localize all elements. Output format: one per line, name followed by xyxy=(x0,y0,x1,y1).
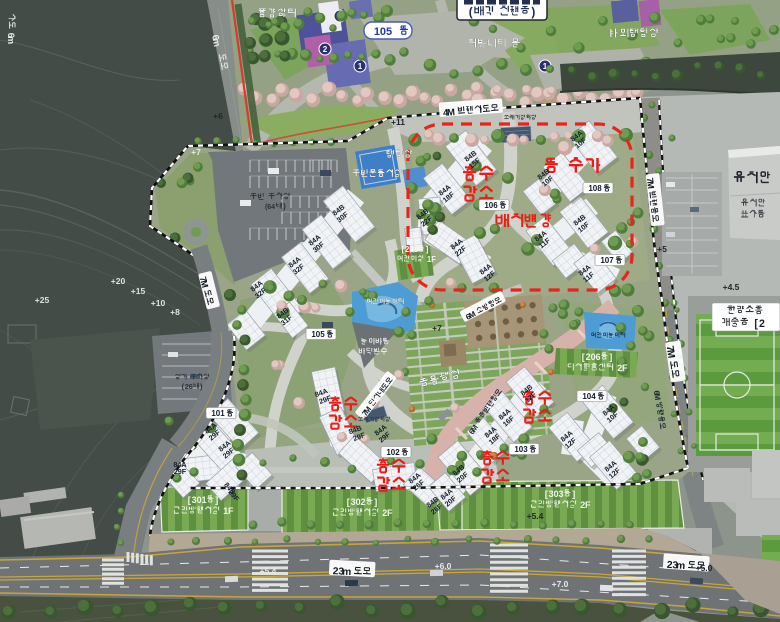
svg-text:6: 6 xyxy=(595,352,600,362)
svg-text:F: F xyxy=(431,255,436,264)
svg-text:M: M xyxy=(447,107,456,119)
svg-text:(: ( xyxy=(469,5,473,19)
svg-text:+10: +10 xyxy=(151,298,166,308)
svg-text:(64: (64 xyxy=(265,204,275,211)
svg-text:102: 102 xyxy=(386,448,400,457)
svg-text:[: [ xyxy=(754,318,758,330)
svg-text:F: F xyxy=(585,500,591,510)
svg-text:+5.4: +5.4 xyxy=(260,566,277,576)
svg-text:+5.4: +5.4 xyxy=(527,511,544,521)
svg-text:M: M xyxy=(652,393,662,401)
svg-text:+6.0: +6.0 xyxy=(435,561,452,571)
svg-text:+20: +20 xyxy=(111,276,126,286)
svg-text:104: 104 xyxy=(582,392,596,401)
svg-text:+11: +11 xyxy=(391,117,405,127)
svg-text:3: 3 xyxy=(414,245,419,254)
svg-text:2: 2 xyxy=(323,45,328,54)
svg-text:+7: +7 xyxy=(191,147,201,157)
svg-text:M: M xyxy=(645,181,656,190)
svg-text:]: ] xyxy=(609,352,612,362)
svg-text:+5: +5 xyxy=(657,244,667,254)
svg-text:+7: +7 xyxy=(432,323,442,333)
svg-text:1: 1 xyxy=(201,495,206,505)
svg-text:3: 3 xyxy=(558,489,563,499)
svg-text:29F: 29F xyxy=(174,467,187,476)
svg-text:1: 1 xyxy=(358,62,363,71)
svg-text:m: m xyxy=(676,560,686,572)
svg-text:+7.0: +7.0 xyxy=(552,579,569,589)
svg-text:6: 6 xyxy=(189,382,193,391)
svg-text:+15: +15 xyxy=(131,286,146,296)
svg-text:108: 108 xyxy=(588,184,602,193)
svg-text:): ) xyxy=(531,5,535,19)
svg-text:105: 105 xyxy=(311,330,325,339)
svg-text:+6: +6 xyxy=(213,111,223,121)
svg-text:2: 2 xyxy=(759,318,765,330)
svg-text:F: F xyxy=(387,508,393,518)
svg-text:[: [ xyxy=(188,495,191,505)
svg-text:]: ] xyxy=(215,495,218,505)
svg-text:): ) xyxy=(283,202,286,211)
svg-text:+5.0: +5.0 xyxy=(696,563,713,573)
svg-text:+4.5: +4.5 xyxy=(723,282,740,292)
svg-text:107: 107 xyxy=(600,256,614,265)
svg-text:]: ] xyxy=(572,489,575,499)
svg-text:[: [ xyxy=(545,489,548,499)
svg-text:]: ] xyxy=(374,497,377,507)
svg-text:2: 2 xyxy=(360,497,365,507)
svg-text:m: m xyxy=(342,567,352,578)
svg-text:103: 103 xyxy=(514,445,528,454)
svg-text:]: ] xyxy=(426,245,429,254)
svg-text:F: F xyxy=(622,363,628,373)
svg-text:101: 101 xyxy=(211,409,225,418)
svg-text:[: [ xyxy=(582,352,585,362)
svg-text:m: m xyxy=(6,36,16,44)
svg-text:106: 106 xyxy=(484,201,498,210)
svg-text:+25: +25 xyxy=(35,295,50,305)
svg-text:M: M xyxy=(664,349,676,359)
svg-text:105: 105 xyxy=(374,26,392,38)
svg-text:F: F xyxy=(228,506,234,516)
svg-text:[: [ xyxy=(347,497,350,507)
svg-text:+8: +8 xyxy=(170,307,180,317)
